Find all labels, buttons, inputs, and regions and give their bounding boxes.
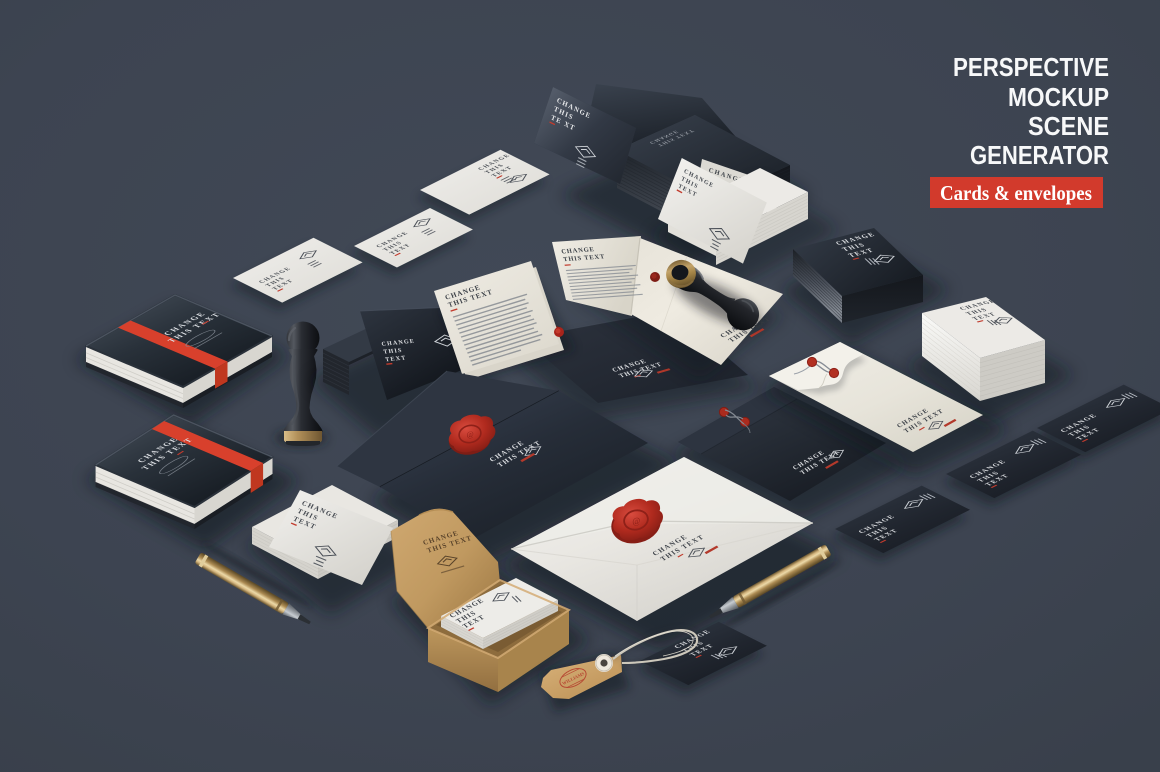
svg-text:SCENE: SCENE bbox=[1028, 111, 1109, 141]
svg-text:PERSPECTIVE: PERSPECTIVE bbox=[953, 52, 1109, 82]
svg-text:MOCKUP: MOCKUP bbox=[1008, 82, 1109, 112]
svg-text:Cards & envelopes: Cards & envelopes bbox=[940, 181, 1092, 205]
svg-text:GENERATOR: GENERATOR bbox=[970, 140, 1109, 170]
